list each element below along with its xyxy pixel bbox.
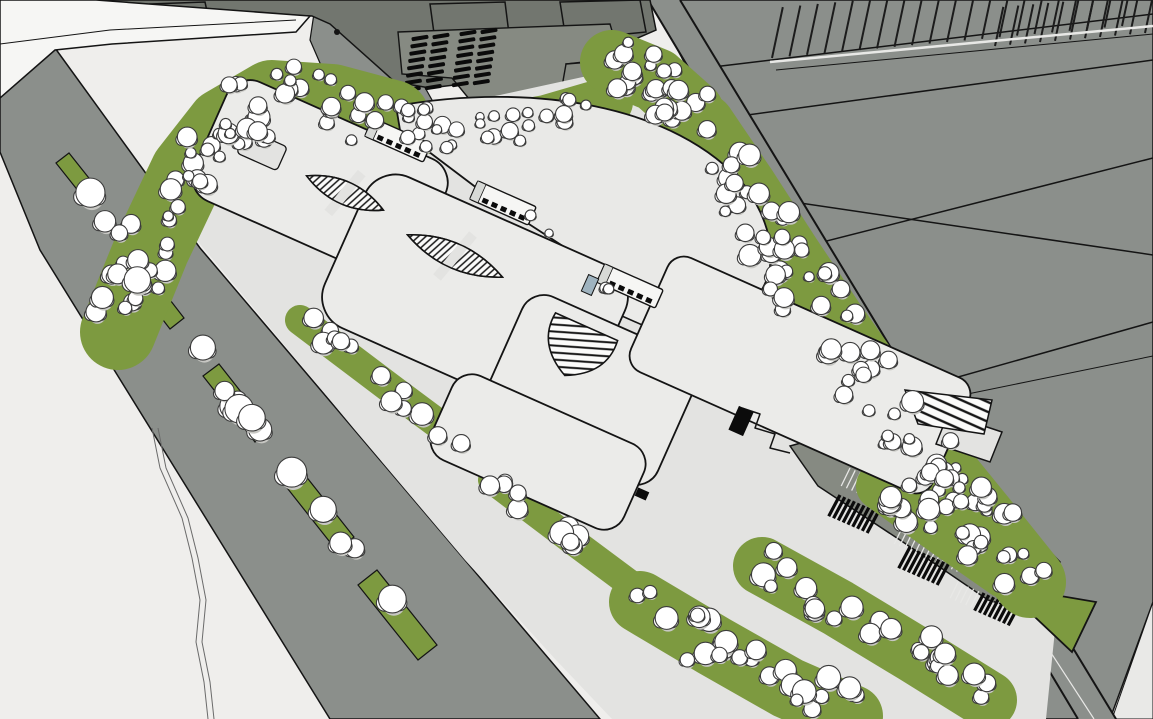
tree-canopy bbox=[777, 558, 797, 578]
tree-canopy bbox=[746, 640, 766, 660]
tree bbox=[416, 114, 433, 131]
tree bbox=[862, 405, 875, 418]
tree-canopy bbox=[608, 79, 627, 98]
strip-dot bbox=[334, 29, 340, 35]
tree bbox=[655, 104, 674, 123]
tree-canopy bbox=[796, 577, 817, 598]
tree bbox=[901, 478, 917, 494]
tree bbox=[790, 694, 803, 707]
tree bbox=[912, 645, 929, 662]
tree-canopy bbox=[91, 286, 113, 308]
tree-canopy bbox=[523, 107, 533, 117]
tree bbox=[622, 62, 642, 82]
tree-canopy bbox=[861, 341, 880, 360]
tree-canopy bbox=[475, 119, 484, 128]
model-viewport[interactable] bbox=[0, 0, 1153, 719]
tree bbox=[400, 103, 415, 118]
tree-canopy bbox=[656, 104, 673, 121]
tree-canopy bbox=[401, 130, 415, 144]
tree bbox=[480, 131, 494, 145]
tree-canopy bbox=[556, 106, 573, 123]
tree bbox=[817, 267, 832, 282]
tree bbox=[764, 580, 778, 594]
tree-canopy bbox=[902, 478, 917, 493]
tree-canopy bbox=[563, 93, 576, 106]
tree bbox=[377, 95, 394, 112]
tree bbox=[448, 122, 465, 139]
tree bbox=[524, 210, 536, 222]
tree-canopy bbox=[581, 100, 591, 110]
tree-canopy bbox=[655, 607, 678, 630]
tree-canopy bbox=[332, 333, 349, 350]
tree bbox=[213, 151, 225, 163]
tree bbox=[170, 200, 186, 216]
tree-canopy bbox=[452, 435, 470, 453]
tree-canopy bbox=[778, 202, 799, 223]
tree-canopy bbox=[943, 433, 959, 449]
tree-canopy bbox=[774, 288, 794, 308]
tree-canopy bbox=[913, 645, 929, 661]
tree bbox=[400, 130, 416, 146]
tree-canopy bbox=[669, 80, 689, 100]
tree bbox=[331, 333, 350, 352]
tree bbox=[1003, 504, 1022, 523]
tree bbox=[224, 128, 235, 139]
tree bbox=[934, 470, 953, 489]
tree-canopy bbox=[325, 74, 336, 85]
tree-canopy bbox=[881, 618, 902, 639]
tree bbox=[248, 97, 267, 116]
tree bbox=[996, 551, 1010, 565]
tree-canopy bbox=[285, 75, 296, 86]
tree-canopy bbox=[963, 663, 985, 685]
tree bbox=[509, 485, 527, 503]
tree bbox=[365, 112, 384, 131]
tree-canopy bbox=[506, 108, 520, 122]
tree-canopy bbox=[481, 131, 494, 144]
site-3d-view[interactable] bbox=[0, 0, 1153, 719]
tree bbox=[561, 533, 580, 552]
tree-canopy bbox=[958, 546, 977, 565]
tree bbox=[764, 542, 782, 560]
tree-canopy bbox=[839, 677, 861, 699]
tree bbox=[941, 433, 959, 451]
tree-canopy bbox=[545, 229, 553, 237]
tree-canopy bbox=[623, 37, 633, 47]
tree bbox=[689, 608, 705, 624]
tree-canopy bbox=[956, 526, 969, 539]
tree bbox=[339, 85, 355, 101]
tree bbox=[220, 77, 238, 95]
tree bbox=[514, 135, 526, 147]
tree bbox=[580, 100, 591, 111]
tree-canopy bbox=[841, 596, 863, 618]
tree-canopy bbox=[863, 405, 875, 417]
tree-canopy bbox=[698, 121, 715, 138]
tree bbox=[117, 301, 132, 316]
tree bbox=[431, 125, 442, 135]
tree bbox=[603, 284, 615, 295]
tree bbox=[643, 585, 658, 600]
tree-canopy bbox=[417, 114, 433, 130]
tree-canopy bbox=[418, 104, 429, 115]
tree bbox=[973, 535, 988, 550]
tree-canopy bbox=[111, 225, 127, 241]
tree-canopy bbox=[756, 230, 770, 244]
tree-canopy bbox=[795, 243, 809, 257]
tree-canopy bbox=[441, 141, 453, 153]
tree-canopy bbox=[954, 482, 965, 493]
tree bbox=[324, 74, 337, 87]
tree-canopy bbox=[700, 86, 716, 102]
tree-canopy bbox=[904, 434, 915, 445]
tree-canopy bbox=[372, 367, 390, 385]
tree-canopy bbox=[523, 120, 535, 132]
tree bbox=[312, 69, 324, 81]
tree bbox=[505, 108, 520, 123]
tree-canopy bbox=[739, 244, 761, 266]
tree-canopy bbox=[997, 551, 1010, 564]
tree-canopy bbox=[214, 151, 225, 162]
tree bbox=[697, 121, 716, 140]
tree-canopy bbox=[449, 122, 464, 137]
tree-canopy bbox=[118, 301, 131, 314]
tree bbox=[159, 237, 174, 252]
tree bbox=[955, 526, 969, 540]
tree-canopy bbox=[902, 391, 924, 413]
tree-canopy bbox=[190, 335, 215, 360]
tree-canopy bbox=[160, 179, 181, 200]
tree-canopy bbox=[954, 494, 969, 509]
tree-canopy bbox=[540, 109, 554, 123]
tree-canopy bbox=[378, 95, 393, 110]
tree-canopy bbox=[856, 367, 871, 382]
tree bbox=[725, 174, 744, 193]
tree-canopy bbox=[248, 122, 267, 141]
tree-canopy bbox=[525, 210, 536, 221]
tree-canopy bbox=[366, 112, 383, 129]
tree-canopy bbox=[805, 599, 824, 618]
tree-canopy bbox=[1004, 504, 1021, 521]
tree bbox=[451, 435, 470, 454]
tree-canopy bbox=[774, 229, 789, 244]
tree bbox=[522, 120, 535, 133]
tree bbox=[834, 386, 853, 405]
tree bbox=[705, 162, 718, 175]
tree-canopy bbox=[765, 542, 782, 559]
tree bbox=[284, 75, 297, 87]
tree-canopy bbox=[429, 427, 447, 445]
tree-canopy bbox=[515, 135, 526, 146]
tree-canopy bbox=[160, 237, 174, 251]
tree bbox=[544, 229, 554, 238]
tree bbox=[1035, 562, 1053, 580]
tree-canopy bbox=[480, 476, 499, 495]
tree-canopy bbox=[680, 653, 694, 667]
tree bbox=[417, 104, 430, 117]
tree bbox=[855, 367, 872, 384]
tree-canopy bbox=[271, 68, 283, 80]
tree bbox=[773, 229, 790, 246]
tree-canopy bbox=[193, 174, 208, 189]
tree-canopy bbox=[330, 532, 352, 554]
tree-canopy bbox=[712, 647, 727, 662]
tree bbox=[151, 282, 165, 296]
tree bbox=[440, 141, 454, 155]
tree bbox=[191, 174, 207, 190]
tree-canopy bbox=[304, 308, 324, 328]
tree bbox=[903, 434, 915, 446]
tree bbox=[475, 119, 486, 129]
tree-canopy bbox=[201, 143, 214, 156]
tree-canopy bbox=[221, 77, 237, 93]
tree-canopy bbox=[310, 496, 336, 522]
tree-canopy bbox=[935, 643, 956, 664]
tree bbox=[953, 482, 966, 495]
tree-canopy bbox=[835, 386, 852, 403]
tree-canopy bbox=[562, 533, 579, 550]
tree-canopy bbox=[381, 391, 402, 412]
tree-canopy bbox=[225, 128, 235, 138]
tree-canopy bbox=[726, 174, 743, 191]
tree bbox=[881, 430, 894, 443]
tree bbox=[711, 647, 728, 664]
tree-canopy bbox=[765, 580, 777, 592]
tree-canopy bbox=[720, 206, 731, 217]
tree-canopy bbox=[124, 267, 150, 293]
tree-canopy bbox=[489, 111, 500, 122]
tree-canopy bbox=[938, 665, 958, 685]
tree bbox=[562, 93, 576, 107]
tree-canopy bbox=[749, 183, 770, 204]
tree bbox=[110, 225, 128, 243]
tree bbox=[888, 408, 901, 421]
tree-canopy bbox=[860, 623, 880, 643]
tree bbox=[923, 521, 937, 535]
tree-canopy bbox=[644, 585, 657, 598]
tree-canopy bbox=[840, 342, 860, 362]
tree bbox=[285, 59, 302, 76]
tree-canopy bbox=[889, 408, 901, 420]
tree-canopy bbox=[994, 573, 1014, 593]
tree-canopy bbox=[346, 135, 357, 146]
tree bbox=[794, 243, 810, 259]
tree-canopy bbox=[155, 260, 176, 281]
tree-canopy bbox=[690, 608, 704, 622]
tree-canopy bbox=[177, 127, 197, 147]
tree-canopy bbox=[971, 477, 991, 497]
tree-canopy bbox=[821, 339, 841, 359]
tree-canopy bbox=[812, 296, 830, 314]
tree-canopy bbox=[420, 141, 432, 153]
tree-canopy bbox=[791, 694, 803, 706]
tree bbox=[803, 272, 814, 283]
tree-canopy bbox=[739, 144, 761, 166]
tree bbox=[371, 367, 391, 387]
tree bbox=[428, 427, 448, 447]
tree bbox=[656, 64, 672, 80]
tree-canopy bbox=[1018, 548, 1029, 559]
tree-canopy bbox=[411, 403, 434, 426]
tree-canopy bbox=[842, 374, 854, 386]
tree-canopy bbox=[657, 64, 671, 78]
tree bbox=[1017, 548, 1029, 560]
tree-canopy bbox=[646, 46, 662, 62]
tree bbox=[840, 310, 853, 323]
tree-canopy bbox=[152, 282, 164, 294]
tree-canopy bbox=[185, 147, 196, 158]
tree bbox=[878, 351, 897, 370]
tree bbox=[522, 107, 533, 118]
tree-canopy bbox=[355, 93, 374, 112]
tree bbox=[629, 588, 645, 604]
tree-canopy bbox=[239, 404, 266, 431]
tree-canopy bbox=[1036, 562, 1052, 578]
tree-canopy bbox=[378, 585, 406, 613]
tree bbox=[622, 37, 633, 48]
tree-canopy bbox=[249, 97, 267, 115]
tree bbox=[735, 224, 754, 243]
tree-canopy bbox=[882, 430, 893, 441]
tree-canopy bbox=[880, 351, 897, 368]
tree-canopy bbox=[918, 498, 940, 520]
tree-canopy bbox=[510, 485, 526, 501]
tree bbox=[185, 147, 197, 159]
tree-canopy bbox=[924, 521, 937, 534]
tree bbox=[200, 143, 215, 158]
tree-canopy bbox=[313, 69, 324, 80]
tree bbox=[270, 68, 283, 81]
tree bbox=[644, 46, 662, 64]
tree-canopy bbox=[277, 457, 307, 487]
tree-canopy bbox=[171, 200, 185, 214]
tree-canopy bbox=[974, 535, 988, 549]
tree bbox=[719, 206, 731, 218]
tree bbox=[679, 653, 695, 669]
tree-canopy bbox=[766, 265, 785, 284]
tree-canopy bbox=[737, 224, 754, 241]
tree bbox=[539, 109, 554, 124]
tree-canopy bbox=[804, 272, 814, 282]
tree-canopy bbox=[432, 125, 442, 135]
tree-canopy bbox=[818, 267, 831, 280]
tree bbox=[952, 494, 968, 510]
tree-canopy bbox=[880, 486, 901, 507]
tree-canopy bbox=[76, 178, 105, 207]
tree-canopy bbox=[817, 665, 841, 689]
tree-canopy bbox=[401, 103, 414, 116]
tree bbox=[345, 135, 357, 147]
tree bbox=[755, 230, 771, 246]
tree-canopy bbox=[322, 97, 340, 115]
tree-canopy bbox=[603, 284, 613, 294]
tree bbox=[811, 296, 831, 316]
tree-canopy bbox=[936, 470, 954, 488]
tree-canopy bbox=[286, 59, 301, 74]
tree-canopy bbox=[623, 62, 641, 80]
tree bbox=[321, 97, 341, 117]
tree-canopy bbox=[841, 310, 852, 321]
tree bbox=[419, 141, 432, 154]
tree-canopy bbox=[341, 85, 356, 100]
tree bbox=[554, 106, 572, 124]
tree-canopy bbox=[706, 162, 718, 174]
tree bbox=[699, 86, 716, 103]
tree bbox=[488, 111, 500, 123]
